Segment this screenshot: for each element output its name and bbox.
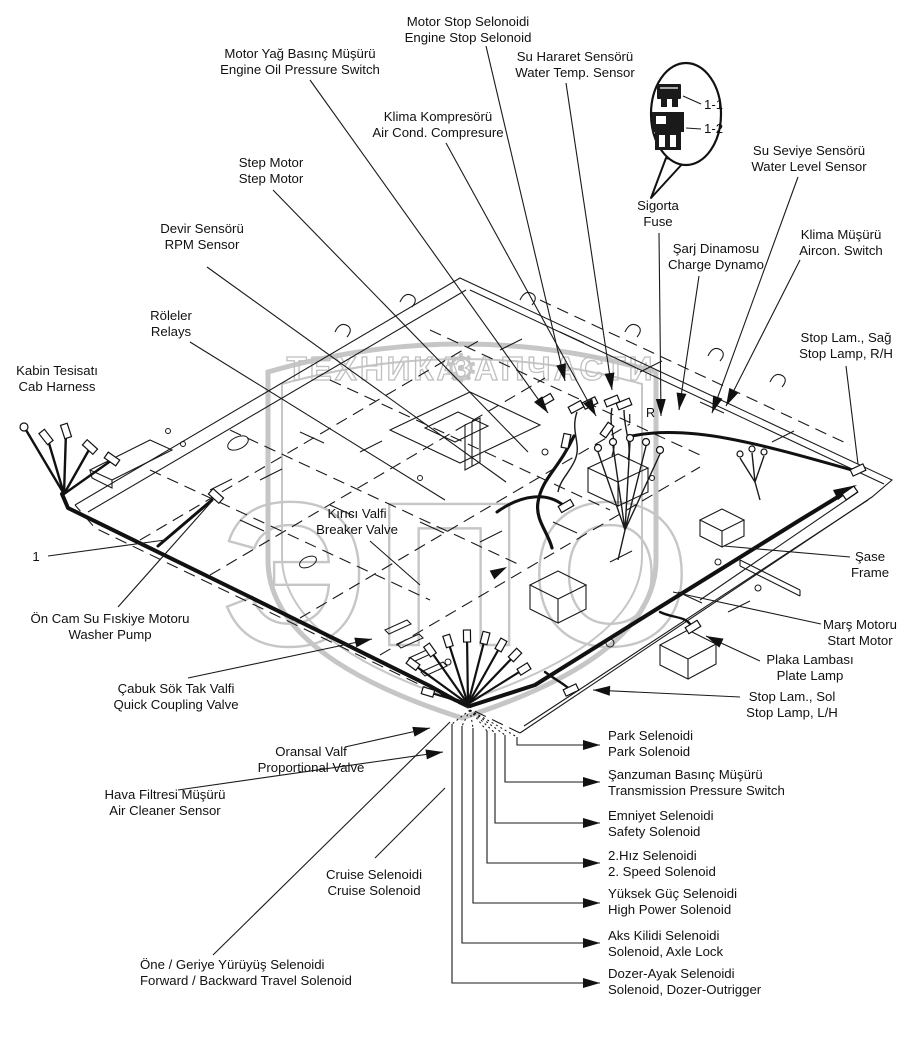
- leader-line: [375, 788, 445, 858]
- label-axle-lock-solenoid: Aks Kilidi SelenoidiSolenoid, Axle Lock: [462, 726, 724, 959]
- connector: [463, 630, 470, 642]
- label-text: Cruise SelenoidiCruise Solenoid: [326, 867, 422, 898]
- leader-arrowhead: [674, 392, 686, 410]
- connector: [600, 422, 614, 437]
- leader-line: [593, 690, 740, 697]
- label-text: SigortaFuse: [637, 198, 679, 229]
- ring-terminal: [20, 423, 28, 431]
- connector: [39, 429, 53, 444]
- leader-arrowhead: [583, 777, 600, 787]
- label-text: Şanzuman Basınç MüşürüTransmission Press…: [608, 767, 785, 798]
- label-charge-dynamo: Şarj DinamosuCharge Dynamo: [668, 241, 764, 411]
- label-text: Oransal ValfProportional Valve: [258, 744, 365, 775]
- label-cab-harness: Kabin TesisatıCab Harness: [16, 363, 98, 394]
- leader-arrowhead: [583, 818, 600, 828]
- label-park-solenoid: Park SelenoidiPark Solenoid: [517, 728, 693, 759]
- label-text: Marş MotoruStart Motor: [823, 617, 897, 648]
- label-text: ŞaseFrame: [851, 549, 889, 580]
- label-text: Step MotorStep Motor: [239, 155, 304, 186]
- label-text: Klima MüşürüAircon. Switch: [799, 227, 883, 258]
- fuse-icon-large: [652, 112, 684, 150]
- leader-line: [566, 83, 612, 390]
- fuse-tag-1-1: 1-1: [704, 97, 723, 112]
- label-text: Su Hararet SensörüWater Temp. Sensor: [515, 49, 635, 80]
- label-text: RölelerRelays: [150, 308, 192, 339]
- leader-line: [473, 728, 600, 903]
- label-text: Ön Cam Su Fıskiye MotoruWasher Pump: [30, 611, 189, 642]
- label-text: Motor Stop SelonoidiEngine Stop Selonoid: [405, 14, 532, 45]
- leader-line: [486, 46, 565, 381]
- label-text: Plaka LambasıPlate Lamp: [766, 652, 853, 683]
- label-text: Kabin TesisatıCab Harness: [16, 363, 98, 394]
- connector: [61, 423, 72, 438]
- leader-arrowhead: [425, 747, 443, 759]
- label-stop-lamp-lh: Stop Lam., SolStop Lamp, L/H: [593, 685, 838, 720]
- ring-terminal-cluster: [737, 446, 767, 500]
- label-proportional-valve: Oransal ValfProportional Valve: [258, 723, 431, 775]
- leader-arrowhead: [583, 938, 600, 948]
- leader-arrowhead: [583, 978, 600, 988]
- label-text: 2.Hız Selenoidi2. Speed Solenoid: [608, 848, 716, 879]
- label-text: Devir SensörüRPM Sensor: [160, 221, 244, 252]
- leader-line: [118, 500, 213, 607]
- connector: [82, 440, 97, 455]
- label-text: Klima KompresörüAir Cond. Compresure: [372, 109, 503, 140]
- leader-arrowhead: [583, 858, 600, 868]
- leader-arrowhead: [583, 898, 600, 908]
- label-text: Şarj DinamosuCharge Dynamo: [668, 241, 764, 272]
- fuse-tag-1-2: 1-2: [704, 121, 723, 136]
- leader-line: [679, 276, 699, 410]
- leader-arrowhead: [412, 723, 431, 736]
- label-text: Park SelenoidiPark Solenoid: [608, 728, 693, 759]
- mark-r: R: [646, 406, 655, 420]
- label-text: Stop Lam., SolStop Lamp, L/H: [746, 689, 838, 720]
- label-cruise-solenoid: Cruise SelenoidiCruise Solenoid: [326, 788, 445, 898]
- label-text: Su Seviye SensörüWater Level Sensor: [751, 143, 867, 174]
- leader-line: [726, 260, 800, 406]
- label-text: Çabuk Sök Tak ValfiQuick Coupling Valve: [113, 681, 238, 712]
- leader-line: [659, 233, 661, 416]
- label-text: Kırıcı ValfiBreaker Valve: [316, 506, 398, 537]
- label-text: Öne / Geriye Yürüyüş SelenoidiForward / …: [140, 957, 352, 988]
- label-text: Dozer-Ayak SelenoidiSolenoid, Dozer-Outr…: [608, 966, 762, 997]
- label-air-cleaner-sensor: Hava Filtresi MüşürüAir Cleaner Sensor: [105, 747, 444, 818]
- harness-diagram: ЭПО ТЕХНИКА ⚙ ЗАПЧАСТИ: [0, 0, 920, 1038]
- label-stop-lamp-rh: Stop Lam., SağStop Lamp, R/H: [799, 330, 893, 464]
- parts-diagram-page: ЭПО ТЕХНИКА ⚙ ЗАПЧАСТИ: [0, 0, 920, 1038]
- leader-line: [452, 724, 600, 983]
- label-text: Stop Lam., SağStop Lamp, R/H: [799, 330, 893, 361]
- label-text: Motor Yağ Basınç MüşürüEngine Oil Pressu…: [220, 46, 380, 77]
- label-text: Hava Filtresi MüşürüAir Cleaner Sensor: [105, 787, 226, 818]
- leader-line: [487, 731, 600, 863]
- label-text: 1: [32, 549, 39, 564]
- leader-line: [846, 366, 858, 464]
- mark-i: I: [628, 412, 631, 426]
- watermark-left-text: ТЕХНИКА: [287, 350, 464, 387]
- label-text: Emniyet SelenoidiSafety Solenoid: [608, 808, 714, 839]
- label-text: Yüksek Güç SelenoidiHigh Power Solenoid: [608, 886, 737, 917]
- label-text: Aks Kilidi SelenoidiSolenoid, Axle Lock: [608, 928, 724, 959]
- connector: [568, 401, 584, 414]
- leader-line: [462, 726, 600, 943]
- fuse-detail-callout: 1-1 1-2: [651, 63, 723, 198]
- label-water-level-sensor: Su Seviye SensörüWater Level Sensor: [707, 143, 867, 415]
- leader-arrowhead: [583, 740, 600, 750]
